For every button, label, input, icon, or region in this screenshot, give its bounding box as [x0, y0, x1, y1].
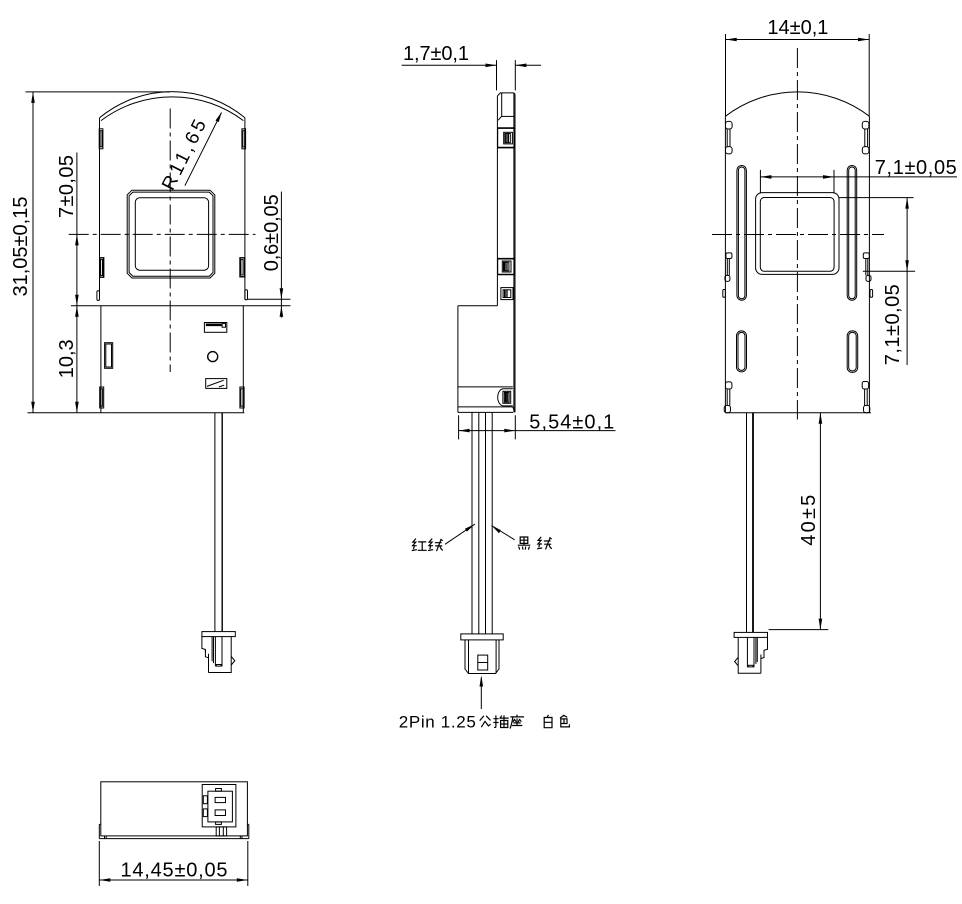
svg-text:7,1±0,05: 7,1±0,05: [882, 284, 904, 365]
svg-text:2Pin 1.25: 2Pin 1.25: [399, 713, 476, 732]
svg-text:31,05±0,15: 31,05±0,15: [10, 197, 32, 297]
svg-text:7±0,05: 7±0,05: [56, 155, 78, 218]
svg-text:14,45±0,05: 14,45±0,05: [121, 859, 228, 881]
svg-text:10,3: 10,3: [56, 339, 78, 378]
svg-text:7,1±0,05: 7,1±0,05: [875, 157, 957, 179]
svg-text:1,7±0,1: 1,7±0,1: [403, 43, 469, 65]
svg-text:14±0,1: 14±0,1: [767, 17, 828, 39]
svg-text:5,54±0,1: 5,54±0,1: [529, 411, 614, 433]
svg-text:0,6±0,05: 0,6±0,05: [261, 194, 283, 271]
